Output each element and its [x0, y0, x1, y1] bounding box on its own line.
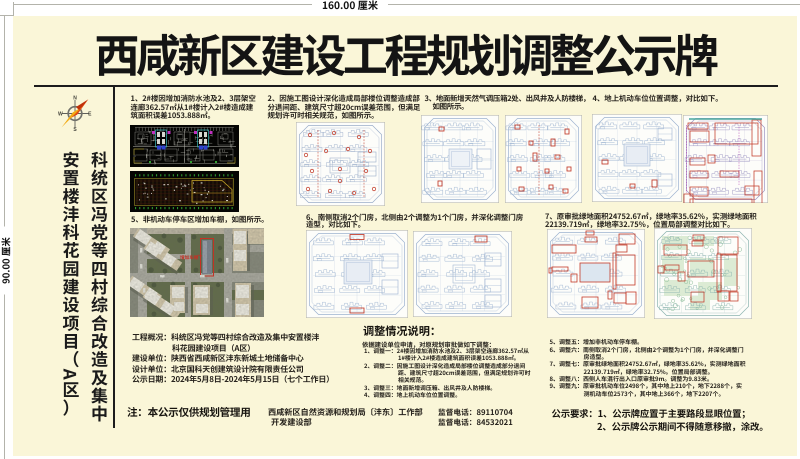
svg-text:S: S — [73, 127, 77, 131]
svg-text:N: N — [73, 96, 77, 102]
svg-text:W: W — [58, 111, 63, 117]
svg-text:E: E — [88, 111, 92, 117]
